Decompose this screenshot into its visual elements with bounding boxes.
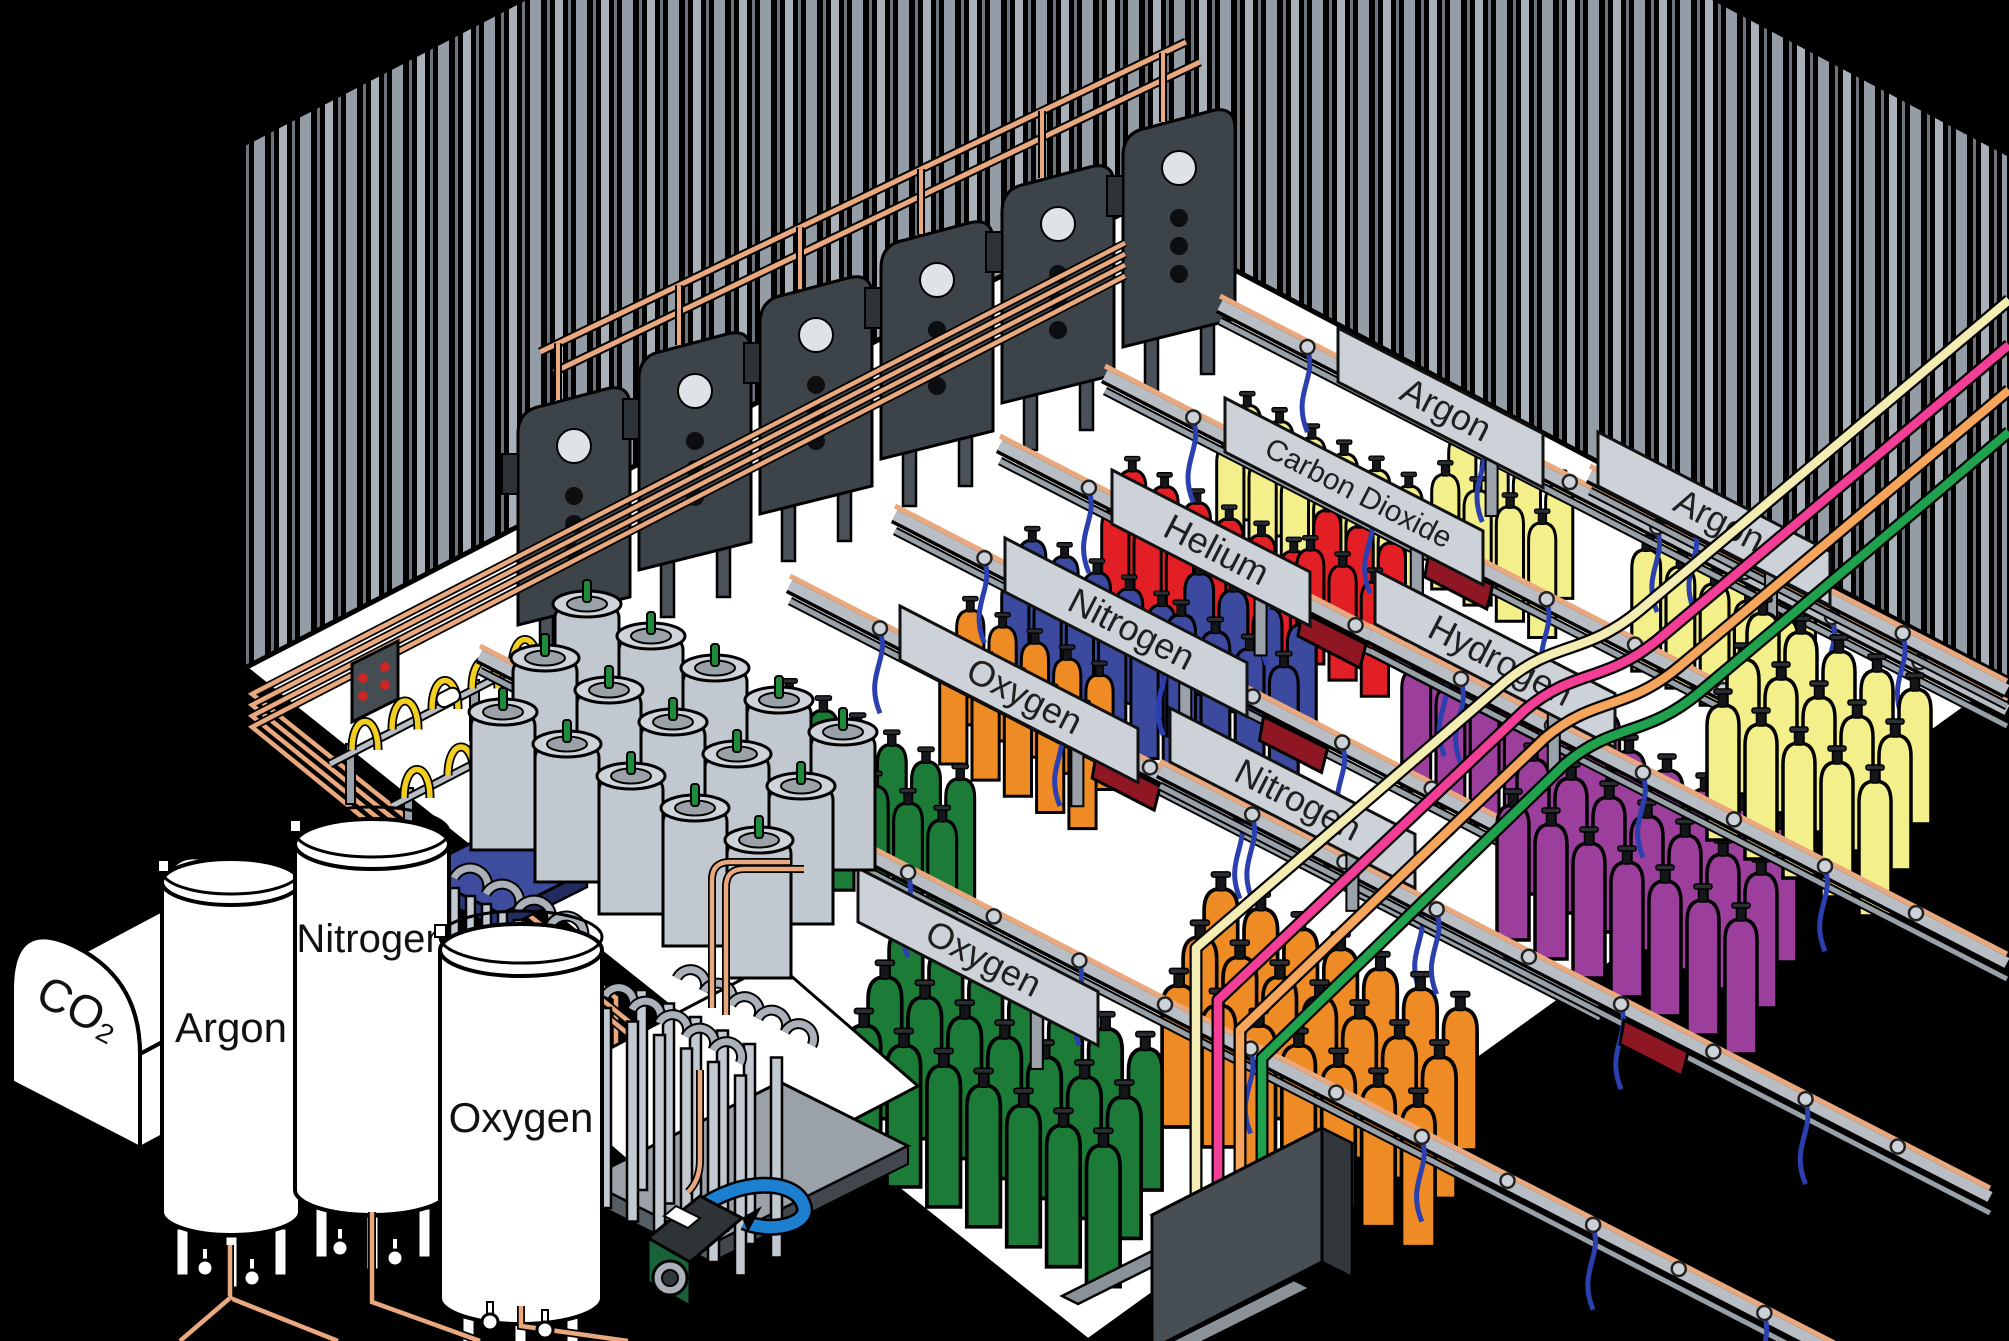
nitrogen-tank: Nitrogen	[290, 807, 449, 1270]
tank-label-argon: Argon	[175, 1004, 287, 1051]
oxygen-tank: Oxygen	[435, 911, 602, 1341]
gas-plant-diagram: ArgonCarbon DioxideHeliumNitrogenOxygenA…	[0, 0, 2009, 1341]
tank-label-oxygen: Oxygen	[449, 1094, 594, 1141]
argon-tank: Argon	[158, 848, 300, 1288]
tank-label-nitrogen: Nitrogen	[296, 917, 447, 961]
